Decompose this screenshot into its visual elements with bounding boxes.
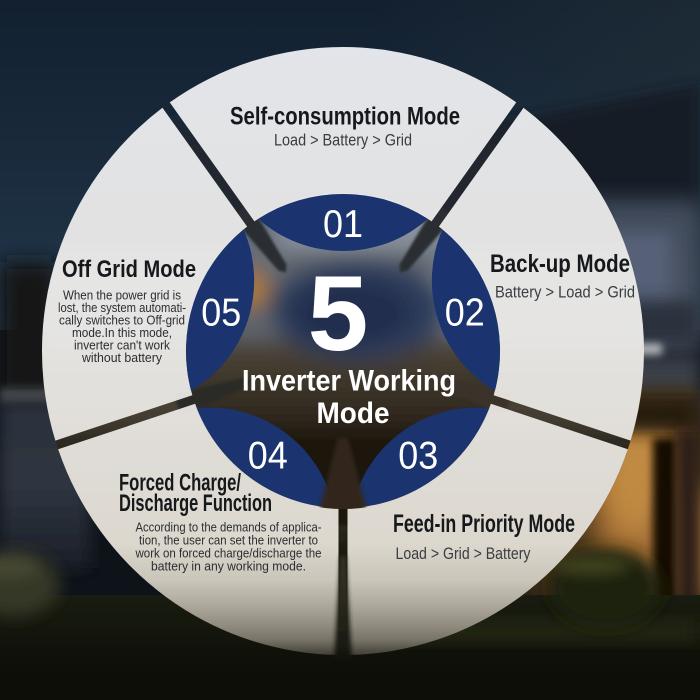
svg-text:Feed-in Priority Mode: Feed-in Priority Mode (393, 510, 575, 538)
svg-text:03: 03 (398, 435, 438, 478)
svg-text:5: 5 (308, 253, 369, 373)
svg-text:02: 02 (445, 291, 485, 334)
svg-text:01: 01 (323, 203, 363, 246)
svg-text:Inverter Working: Inverter Working (242, 365, 456, 398)
svg-text:Self-consumption Mode: Self-consumption Mode (230, 103, 460, 131)
svg-text:Discharge Function: Discharge Function (119, 490, 272, 517)
svg-text:Mode: Mode (317, 397, 390, 430)
svg-text:04: 04 (248, 435, 288, 478)
svg-text:without battery: without battery (81, 350, 162, 365)
svg-text:Back-up Mode: Back-up Mode (490, 250, 630, 278)
svg-text:05: 05 (201, 291, 241, 334)
svg-text:Load > Grid > Battery: Load > Grid > Battery (396, 544, 531, 563)
svg-text:Off Grid Mode: Off Grid Mode (62, 256, 196, 283)
svg-text:Load > Battery > Grid: Load > Battery > Grid (274, 131, 412, 150)
svg-text:battery in any working mode.: battery in any working mode. (151, 559, 306, 574)
svg-text:Battery > Load > Grid: Battery > Load > Grid (495, 283, 635, 302)
